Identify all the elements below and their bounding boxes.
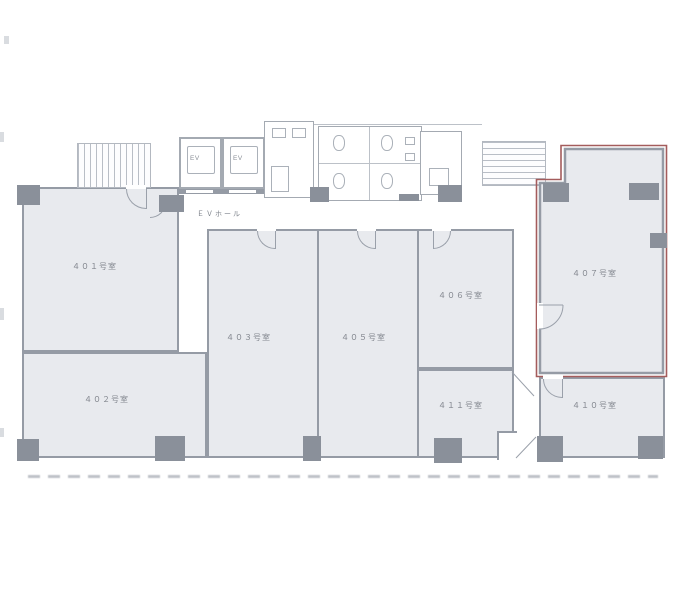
pillar bbox=[629, 183, 659, 200]
pillar bbox=[399, 194, 419, 201]
pillar bbox=[537, 436, 563, 462]
room-410-label: ４１０号室 bbox=[572, 400, 617, 411]
pillar bbox=[155, 436, 185, 461]
pillar bbox=[650, 233, 667, 248]
room-401-label: ４０１号室 bbox=[72, 261, 117, 272]
pillar bbox=[159, 195, 184, 212]
room-406-label: ４０６号室 bbox=[438, 290, 483, 301]
pillar bbox=[17, 185, 40, 205]
room-403-label: ４０３号室 bbox=[226, 332, 271, 343]
pillar bbox=[310, 187, 329, 202]
floor-plan: EV EV ＥＶホール bbox=[0, 0, 681, 597]
elevator-1-label: EV bbox=[190, 155, 200, 162]
door-leaf-410 bbox=[562, 379, 563, 398]
door-leaf-403 bbox=[275, 231, 276, 249]
pillar bbox=[638, 436, 663, 459]
pillar bbox=[17, 439, 39, 461]
room-411-label: ４１１号室 bbox=[438, 400, 483, 411]
room-407-label: ４０７号室 bbox=[572, 268, 617, 279]
pillar bbox=[303, 436, 321, 461]
room-407-overlay bbox=[0, 0, 681, 597]
pillar bbox=[543, 183, 569, 202]
door-leaf-406 bbox=[433, 231, 434, 249]
room-402-label: ４０２号室 bbox=[84, 394, 129, 405]
door-leaf-401 bbox=[146, 189, 147, 209]
door-leaf-405 bbox=[375, 231, 376, 249]
corridor-door-leaf bbox=[512, 372, 534, 396]
entrance-door-leaf bbox=[516, 437, 536, 458]
pillar bbox=[438, 185, 462, 202]
door-gap-407 bbox=[537, 303, 543, 329]
elevator-2-label: EV bbox=[233, 155, 243, 162]
pillar bbox=[434, 438, 462, 463]
room-405-label: ４０５号室 bbox=[341, 332, 386, 343]
ev-hall-label: ＥＶホール bbox=[197, 209, 242, 219]
